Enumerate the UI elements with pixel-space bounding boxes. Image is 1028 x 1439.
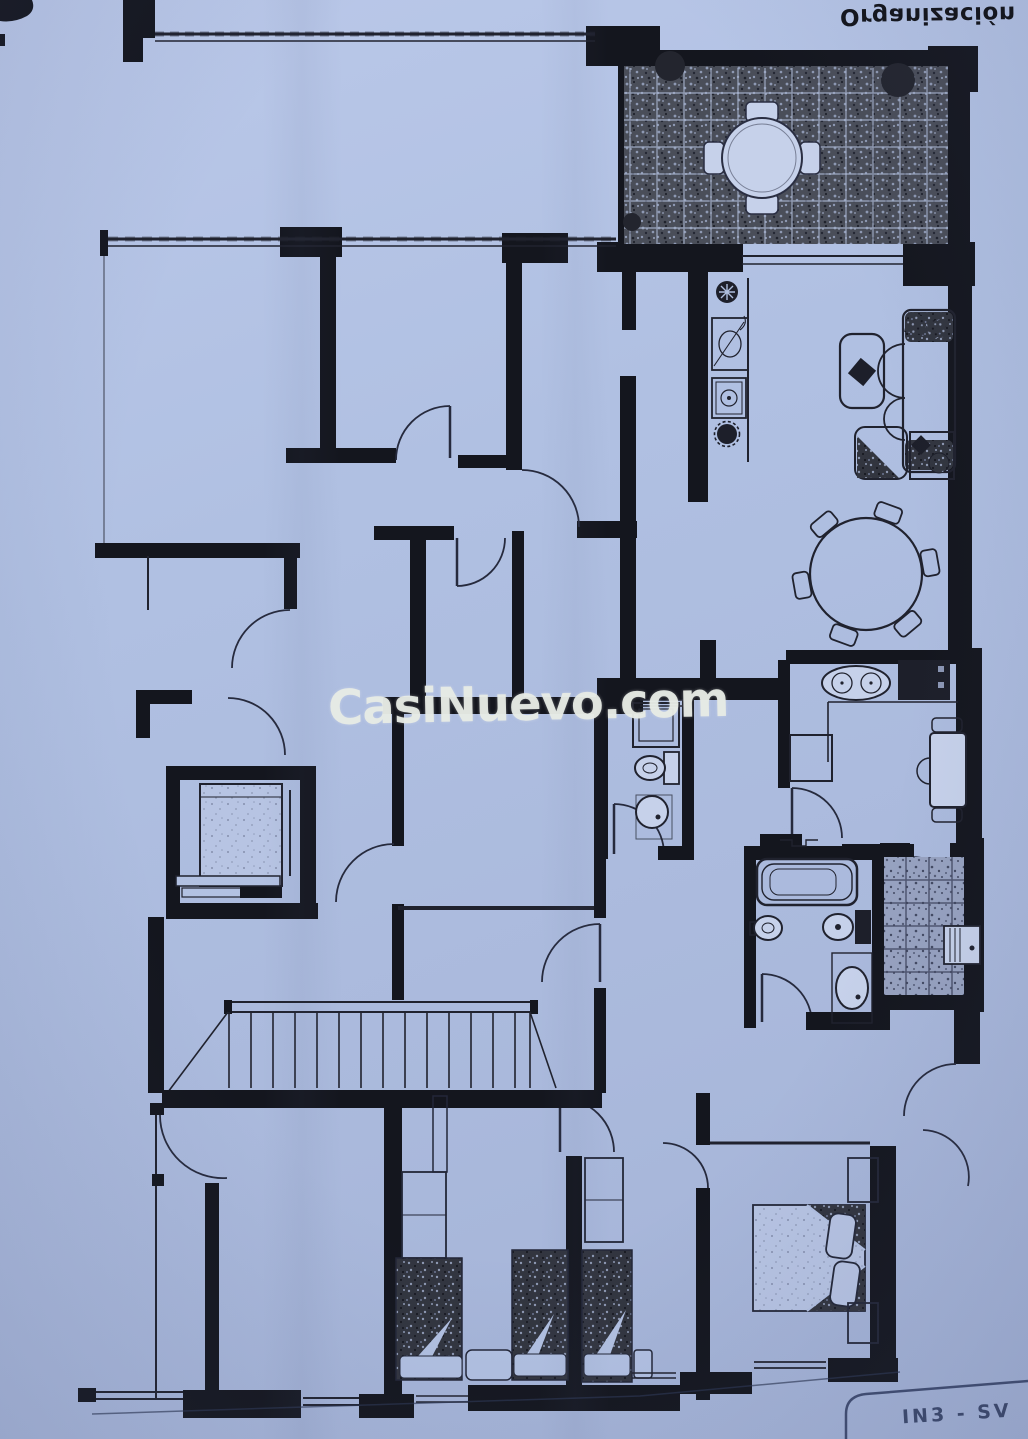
elevator-car-icon [176,784,282,898]
stairs-icon [162,1000,602,1108]
toilet-icon [635,752,679,784]
elevator-core [136,690,318,1093]
dining-table-icon [792,501,940,647]
flipped-header-label: Organización [840,0,1016,29]
nightstand-icon [634,1350,652,1378]
nightstand-icon [466,1350,512,1380]
wardrobe-icon [585,1158,623,1242]
bush-icon [623,213,641,231]
armchair-icon [855,427,907,479]
page-corner-mark [0,0,33,46]
toilet-icon [823,910,871,944]
fridge-icon [790,735,832,781]
single-bed-icon [582,1250,632,1382]
bottom-left-room [150,1103,219,1405]
bedrooms [384,1093,710,1400]
fan-icon [716,281,738,303]
single-bed-icon [512,1250,568,1380]
plant-icon [929,453,949,473]
master-bedroom [710,1143,896,1364]
bathroom [744,840,890,1030]
terrace [623,51,948,244]
watermark-text: CasiNuevo.com [327,672,729,736]
washing-machine-icon [944,926,980,964]
floor-plan-photo: CasiNuevo.com Organización IN3 - SV [0,0,1028,1439]
bush-icon [655,51,685,81]
bathtub-icon [757,859,857,905]
single-bed-icon [396,1258,462,1380]
double-bed-icon [753,1205,865,1311]
utility-strip [712,278,748,462]
double-sink-icon [822,666,890,700]
living-room [840,310,955,479]
gear-icon [715,422,740,447]
washbasin-icon [636,795,672,839]
stove-icon [898,660,950,700]
wardrobe-icon [402,1172,446,1258]
bush-icon [881,63,915,97]
sink-unit-icon [712,316,748,370]
breakfast-table-icon [917,718,966,822]
washing-machine-icon [712,378,746,418]
